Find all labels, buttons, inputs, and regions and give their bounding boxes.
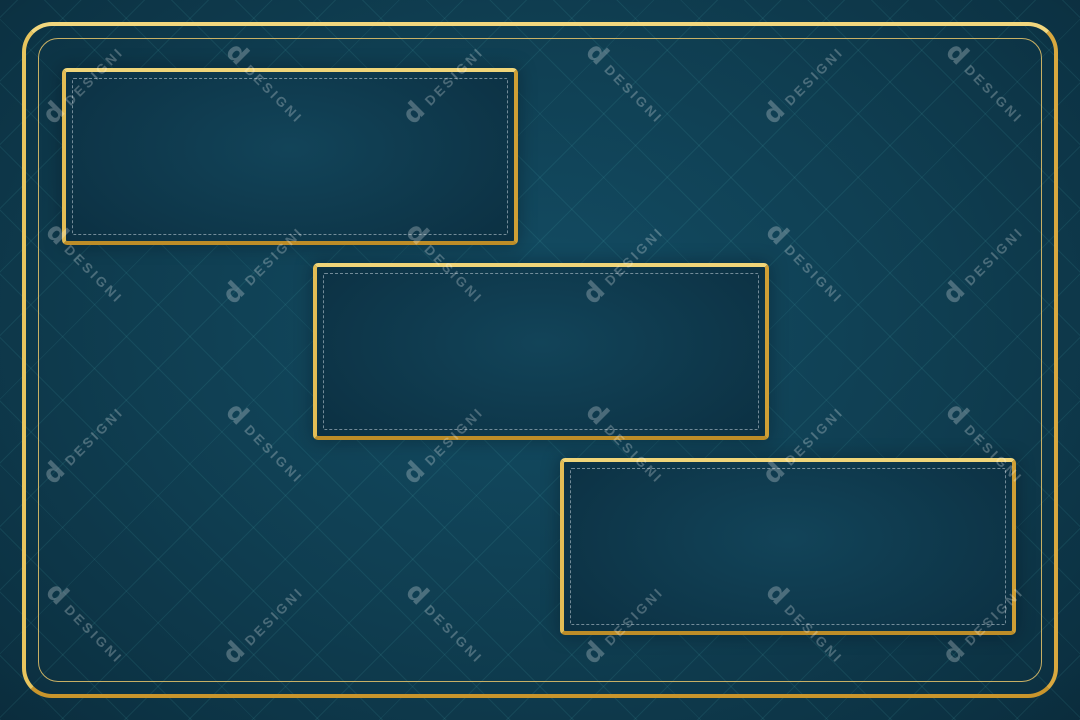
- dashed-inner-border: [570, 468, 1006, 625]
- dashed-inner-border: [72, 78, 508, 235]
- panel-top-left: [62, 68, 518, 245]
- dashed-inner-border: [323, 273, 759, 430]
- panel-center: [313, 263, 769, 440]
- panel-bottom-right: [560, 458, 1016, 635]
- template-canvas: dDESIGNIdDESIGNIdDESIGNIdDESIGNIdDESIGNI…: [0, 0, 1080, 720]
